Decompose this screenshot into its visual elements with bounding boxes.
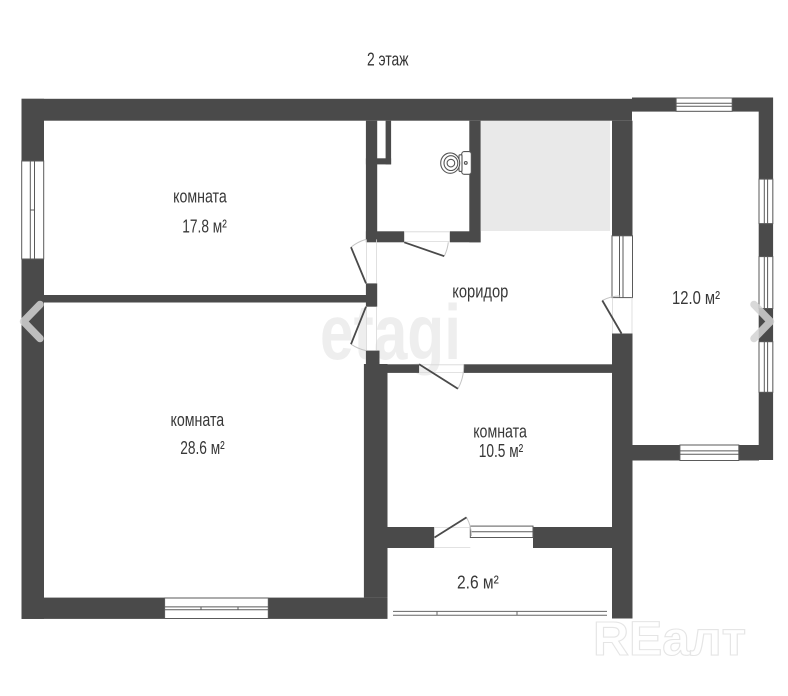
svg-text:REaлт: REaлт — [593, 613, 746, 666]
svg-text:комната: комната — [171, 409, 225, 430]
svg-text:28.6 м²: 28.6 м² — [180, 437, 225, 458]
svg-text:коридор: коридор — [452, 281, 508, 302]
svg-text:12.0 м²: 12.0 м² — [672, 287, 720, 308]
svg-text:2.6 м²: 2.6 м² — [457, 572, 499, 593]
svg-text:комната: комната — [473, 421, 527, 442]
svg-text:комната: комната — [173, 186, 227, 207]
svg-text:17.8 м²: 17.8 м² — [182, 216, 227, 237]
svg-text:2 этаж: 2 этаж — [367, 49, 409, 70]
svg-text:10.5 м²: 10.5 м² — [479, 440, 524, 461]
